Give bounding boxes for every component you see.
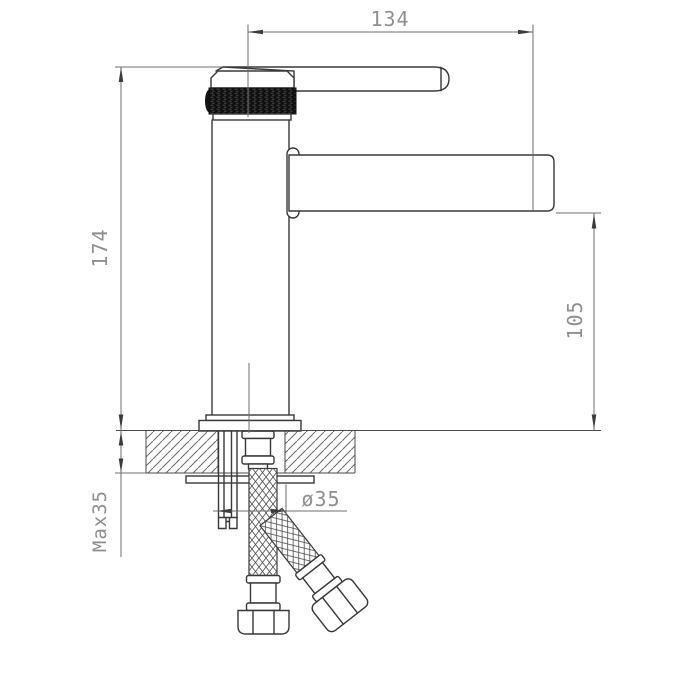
hole-diameter-label: ø35 bbox=[301, 487, 340, 511]
knurled-ring bbox=[205, 88, 296, 114]
spout-height-label: 105 bbox=[563, 300, 587, 339]
counter-thickness-label: Max35 bbox=[89, 490, 111, 552]
technical-drawing-page: 134 174 105 Max35 ø35 bbox=[0, 0, 700, 700]
base-step bbox=[206, 415, 294, 421]
faucet bbox=[199, 67, 554, 431]
trim-ring bbox=[213, 114, 291, 120]
dimension-total-height: 174 bbox=[88, 67, 222, 431]
dimension-spout-height: 105 bbox=[556, 213, 601, 431]
faucet-dimension-drawing: 134 174 105 Max35 ø35 bbox=[0, 0, 700, 700]
spout bbox=[289, 155, 554, 211]
dimension-hole-diameter: ø35 bbox=[213, 485, 347, 516]
total-height-label: 174 bbox=[88, 228, 112, 267]
spout-reach-label: 134 bbox=[370, 7, 409, 31]
hose-nut bbox=[238, 611, 289, 635]
base-flange bbox=[199, 421, 301, 432]
faucet-body-column bbox=[212, 120, 289, 415]
countertop-hatch-left bbox=[146, 431, 218, 473]
supply-connector bbox=[242, 431, 274, 469]
dimension-counter-thickness: Max35 bbox=[89, 431, 146, 558]
countertop-hatch-right bbox=[285, 431, 355, 473]
cartridge-cap bbox=[211, 71, 294, 88]
